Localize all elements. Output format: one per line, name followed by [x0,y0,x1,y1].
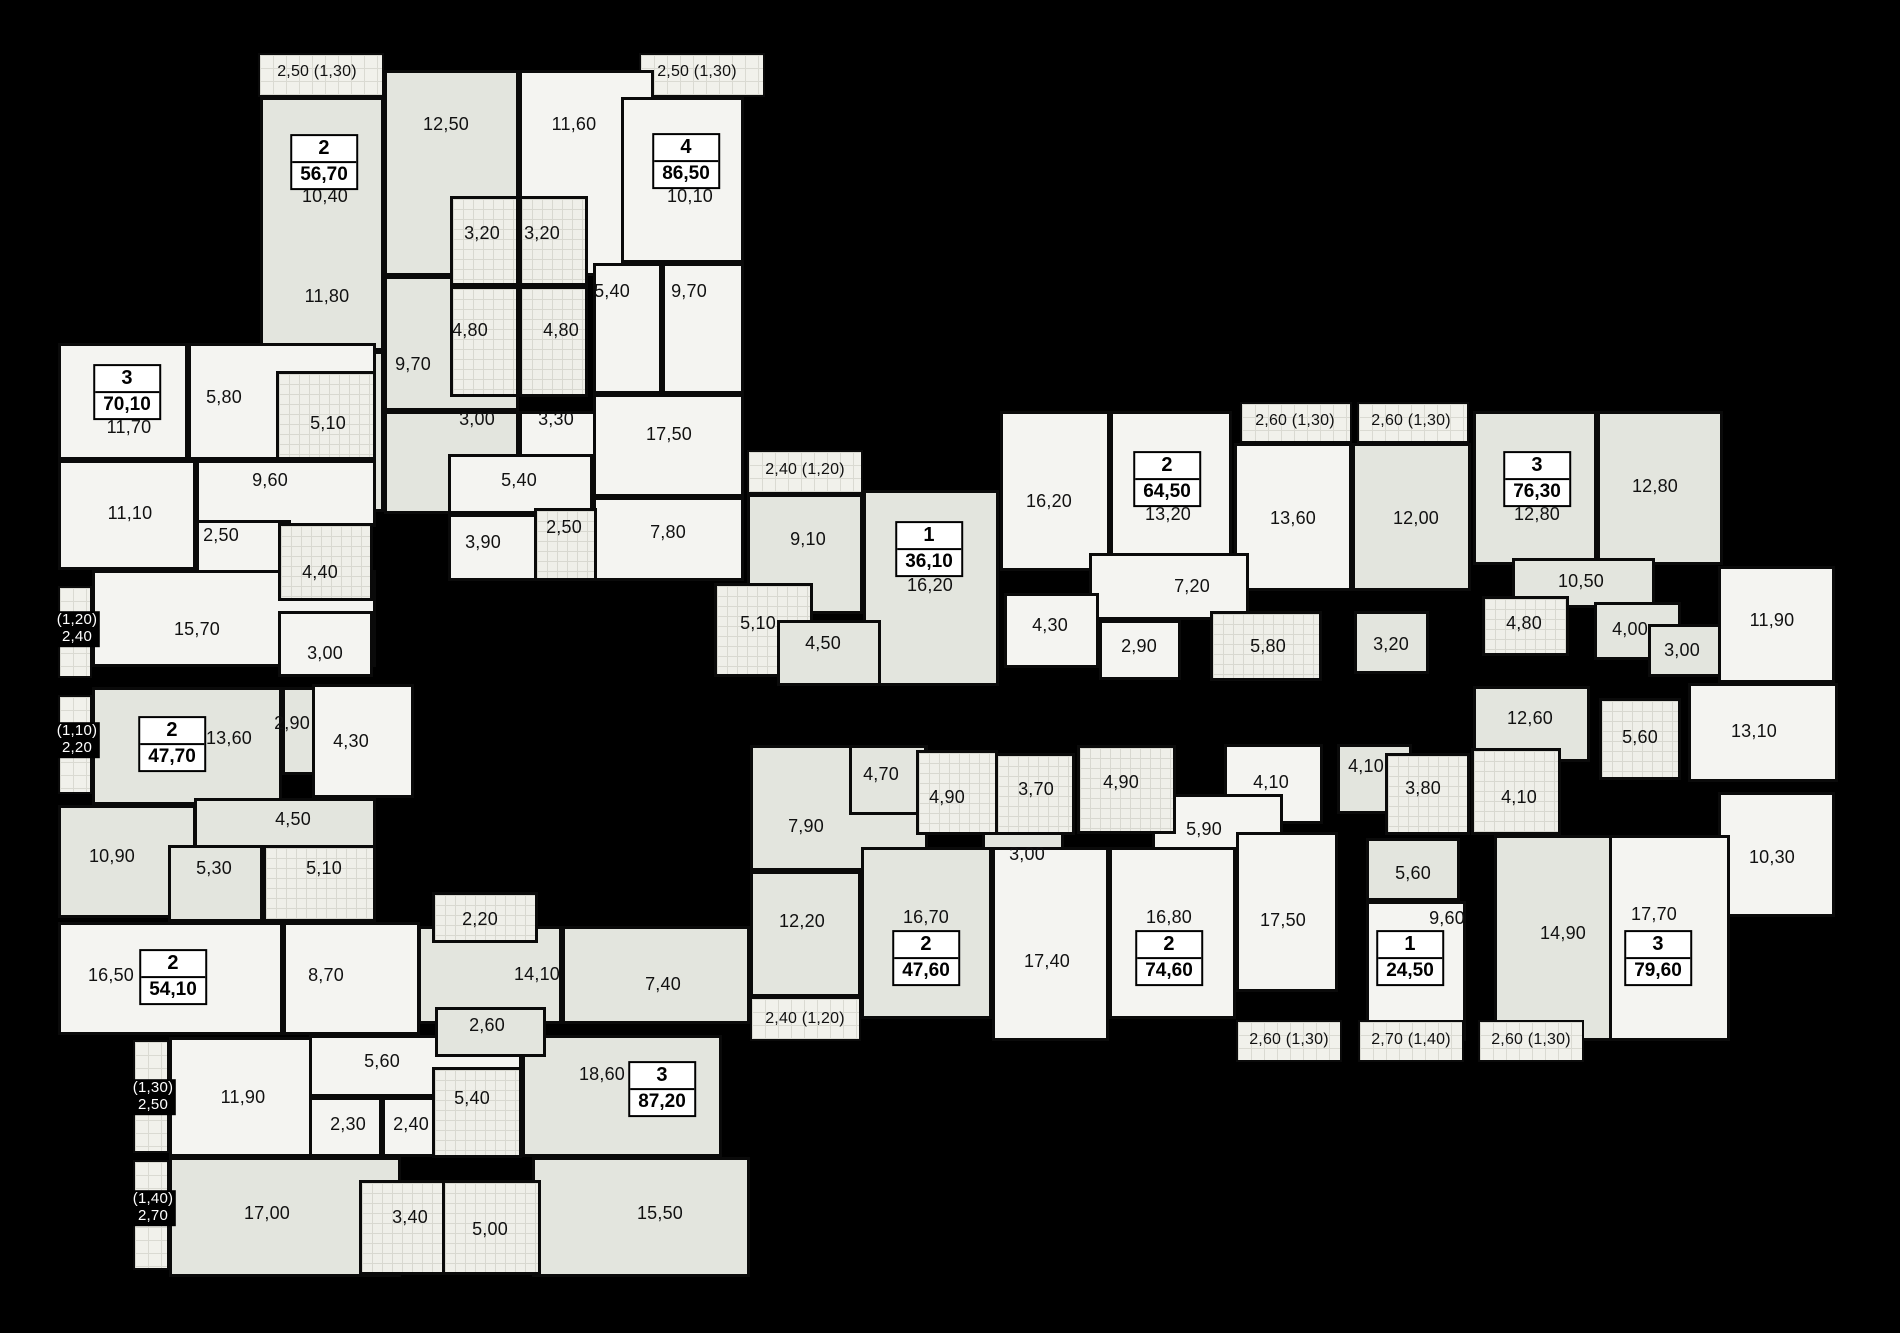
room-area-label: 2,90 [1121,636,1157,656]
room-area-label: 12,80 [1632,476,1678,496]
room-area-label: 2,60 (1,30) [1249,1031,1329,1049]
room-area-label: 13,20 [1145,504,1191,524]
apartment-rooms-count: 3 [1505,453,1569,480]
room-area-label: 7,80 [650,522,686,542]
room-area-label: 9,70 [395,354,431,374]
room-area-label: 10,90 [89,846,135,866]
room-area-label: 4,80 [543,320,579,340]
room-area-label: 7,20 [1174,576,1210,596]
apartment-badge: 379,60 [1624,930,1692,986]
room-area-label: 2,60 [469,1015,505,1035]
apartment-rooms-count: 1 [897,523,961,550]
room-area-label: 4,50 [275,809,311,829]
room-area-label: 2,20 [462,909,498,929]
room-area-label: 10,50 [1558,571,1604,591]
apartment-total-area: 64,50 [1135,480,1199,505]
room-area-label: 3,00 [1009,844,1045,864]
room [992,847,1109,1041]
room-area-label: 2,70 (1,40) [1371,1031,1451,1049]
bathroom [432,1067,522,1158]
room-area-label: 3,00 [459,409,495,429]
room-area-label: (1,20) 2,40 [54,611,100,647]
room-area-label: 9,70 [671,281,707,301]
apartment-rooms-count: 2 [894,932,958,959]
room-area-label: (1,40) 2,70 [130,1190,176,1226]
bathroom [519,286,588,397]
apartment-badge: 247,60 [892,930,960,986]
room-area-label: 3,20 [524,223,560,243]
room-area-label: 4,10 [1253,772,1289,792]
room-area-label: 5,90 [1186,819,1222,839]
room-area-label: 8,70 [308,965,344,985]
room-area-label: 4,90 [929,787,965,807]
room-area-label: 11,80 [305,286,350,306]
room-area-label: 4,50 [805,633,841,653]
room-area-label: 16,70 [903,907,949,927]
apartment-badge: 136,10 [895,521,963,577]
room-area-label: 10,30 [1749,847,1795,867]
apartment-badge: 370,10 [93,364,161,420]
room-area-label: 3,90 [465,532,501,552]
room [593,394,744,497]
room-area-label: 9,10 [790,529,826,549]
room-area-label: (1,10) 2,20 [54,722,100,758]
room-area-label: 16,20 [907,575,953,595]
room-area-label: 16,80 [1146,907,1192,927]
room-area-label: 5,40 [501,470,537,490]
room-area-label: 5,10 [306,858,342,878]
apartment-rooms-count: 2 [140,718,204,745]
apartment-rooms-count: 1 [1378,932,1442,959]
room-area-label: 5,10 [740,613,776,633]
room [283,922,420,1035]
room-area-label: 5,80 [1250,636,1286,656]
room-area-label: 2,60 (1,30) [1491,1031,1571,1049]
room-area-label: 14,90 [1540,923,1586,943]
apartment-badge: 387,20 [628,1061,696,1117]
room-area-label: 4,10 [1348,756,1384,776]
room-area-label: 2,40 (1,20) [765,461,845,479]
room-area-label: 17,00 [244,1203,290,1223]
apartment-rooms-count: 2 [141,951,205,978]
apartment-rooms-count: 3 [95,366,159,393]
room-area-label: 13,60 [206,728,252,748]
room-area-label: 3,00 [307,643,343,663]
room-area-label: 2,40 [393,1114,429,1134]
room-area-label: 11,10 [108,503,153,523]
room-area-label: 4,40 [302,562,338,582]
room-area-label: 15,50 [637,1203,683,1223]
room-area-label: 3,20 [464,223,500,243]
room-area-label: 17,70 [1631,904,1677,924]
apartment-badge: 247,70 [138,716,206,772]
room-area-label: 2,30 [330,1114,366,1134]
room-area-label: 9,60 [252,470,288,490]
apartment-total-area: 76,30 [1505,480,1569,505]
room-area-label: 16,50 [88,965,134,985]
room-area-label: 12,20 [779,911,825,931]
room-area-label: 14,10 [514,964,560,984]
room-area-label: 3,40 [392,1207,428,1227]
room [168,845,263,922]
apartment-rooms-count: 3 [1626,932,1690,959]
room-area-label: 2,40 (1,20) [765,1010,845,1028]
room-area-label: 5,80 [206,387,242,407]
apartment-total-area: 36,10 [897,550,961,575]
room-area-label: 13,10 [1731,721,1777,741]
apartment-badge: 264,50 [1133,451,1201,507]
room-area-label: 4,30 [1032,615,1068,635]
apartment-total-area: 47,60 [894,959,958,984]
apartment-badge: 274,60 [1135,930,1203,986]
apartment-rooms-count: 3 [630,1063,694,1090]
room-area-label: 4,00 [1612,619,1648,639]
room-area-label: 3,80 [1405,778,1441,798]
room-area-label: 2,50 [203,525,239,545]
room-area-label: 12,50 [423,114,469,134]
room-area-label: 2,90 [274,713,310,733]
room-area-label: 7,40 [645,974,681,994]
room-area-label: 5,40 [594,281,630,301]
room-area-label: 5,60 [1395,863,1431,883]
apartment-rooms-count: 4 [654,135,718,162]
apartment-badge: 376,30 [1503,451,1571,507]
room-area-label: 17,50 [1260,910,1306,930]
room-area-label: 5,40 [454,1088,490,1108]
room-area-label: 11,90 [1750,610,1795,630]
apartment-total-area: 56,70 [292,163,356,188]
apartment-badge: 124,50 [1376,930,1444,986]
room-area-label: 4,30 [333,731,369,751]
apartment-total-area: 24,50 [1378,959,1442,984]
apartment-total-area: 79,60 [1626,959,1690,984]
room-area-label: 3,30 [538,409,574,429]
room-area-label: 3,70 [1018,779,1054,799]
apartment-badge: 256,70 [290,134,358,190]
room-area-label: 7,90 [788,816,824,836]
room-area-label: 5,30 [196,858,232,878]
apartment-badge: 486,50 [652,133,720,189]
apartment-total-area: 70,10 [95,393,159,418]
apartment-rooms-count: 2 [1135,453,1199,480]
room-area-label: 17,50 [646,424,692,444]
room-area-label: 2,60 (1,30) [1371,412,1451,430]
room-area-label: 12,80 [1514,504,1560,524]
apartment-total-area: 74,60 [1137,959,1201,984]
room-area-label: 16,20 [1026,491,1072,511]
apartment-rooms-count: 2 [292,136,356,163]
room-area-label: 4,70 [863,764,899,784]
room [750,871,861,997]
apartment-total-area: 86,50 [654,162,718,187]
room-area-label: 2,50 (1,30) [657,63,737,81]
room-area-label: 11,70 [107,417,152,437]
room-area-label: (1,30) 2,50 [130,1079,176,1115]
room-area-label: 2,50 [546,517,582,537]
room-area-label: 13,60 [1270,508,1316,528]
room-area-label: 4,80 [452,320,488,340]
room-area-label: 15,70 [174,619,220,639]
room-area-label: 2,60 (1,30) [1255,412,1335,430]
room-area-label: 10,10 [667,186,713,206]
room-area-label: 4,10 [1501,787,1537,807]
apartment-rooms-count: 2 [1137,932,1201,959]
apartment-total-area: 47,70 [140,745,204,770]
room-area-label: 9,60 [1429,908,1465,928]
room-area-label: 5,60 [1622,727,1658,747]
bathroom [263,845,376,922]
room [1089,553,1249,620]
room-area-label: 4,90 [1103,772,1139,792]
bathroom [450,286,519,397]
floor-plan-canvas: 2,50 (1,30)2,50 (1,30)12,5011,6010,4010,… [0,0,1900,1333]
room-area-label: 17,40 [1024,951,1070,971]
room-area-label: 2,50 (1,30) [277,63,357,81]
room-area-label: 18,60 [579,1064,625,1084]
room-area-label: 5,60 [364,1051,400,1071]
room-area-label: 3,20 [1373,634,1409,654]
room-area-label: 11,60 [552,114,597,134]
room-area-label: 12,00 [1393,508,1439,528]
room-area-label: 3,00 [1664,640,1700,660]
apartment-total-area: 54,10 [141,978,205,1003]
room-area-label: 5,00 [472,1219,508,1239]
room-area-label: 12,60 [1507,708,1553,728]
apartment-total-area: 87,20 [630,1090,694,1115]
room-area-label: 11,90 [221,1087,266,1107]
apartment-badge: 254,10 [139,949,207,1005]
room-area-label: 4,80 [1506,613,1542,633]
room-area-label: 5,10 [310,413,346,433]
